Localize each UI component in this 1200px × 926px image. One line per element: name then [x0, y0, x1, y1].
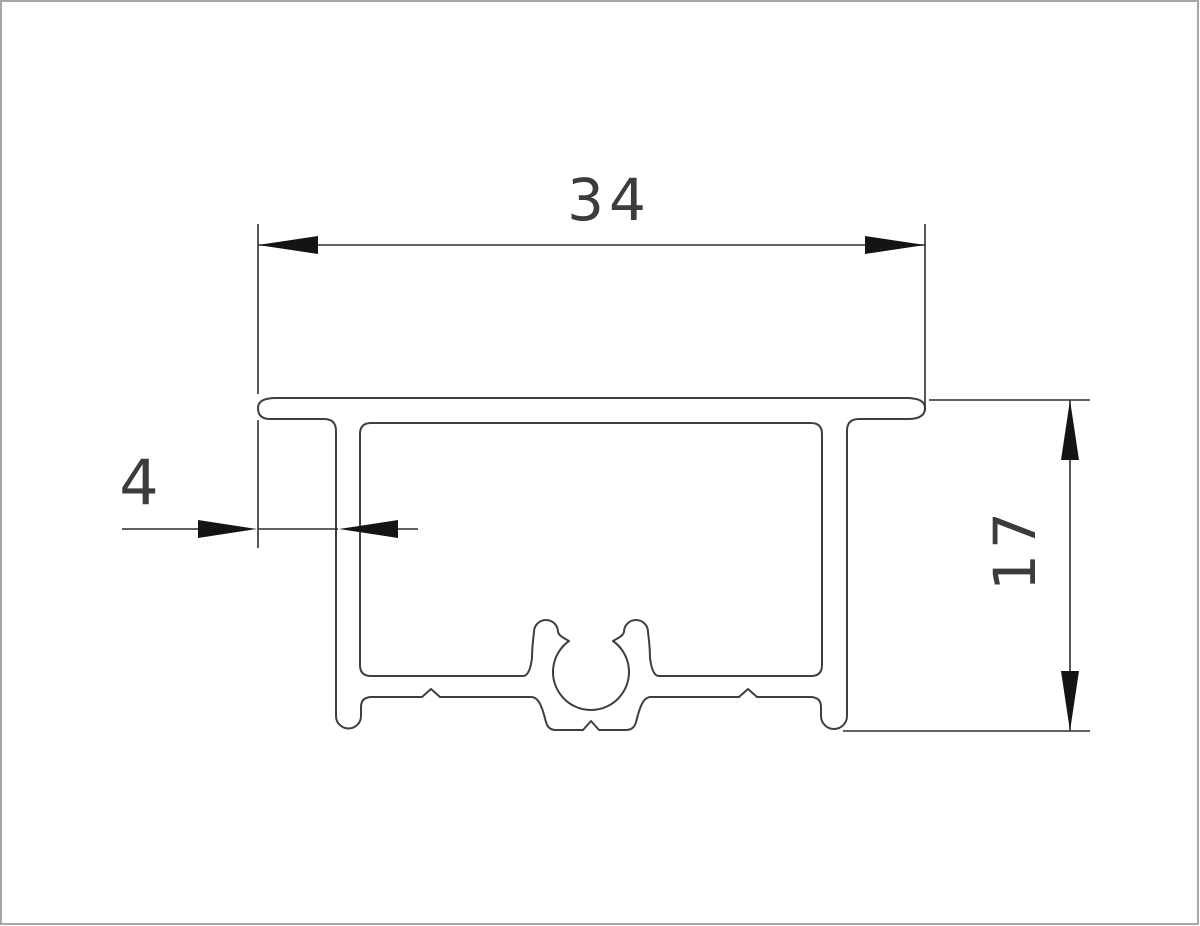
dimension-wall-label: 4 — [119, 446, 158, 519]
page-background — [0, 0, 1200, 926]
dimension-height-label: 17 — [981, 507, 1049, 591]
dimension-width-label: 34 — [567, 166, 651, 234]
drawing-canvas: 34 4 17 — [0, 0, 1200, 926]
cad-drawing: 34 4 17 — [0, 0, 1200, 926]
